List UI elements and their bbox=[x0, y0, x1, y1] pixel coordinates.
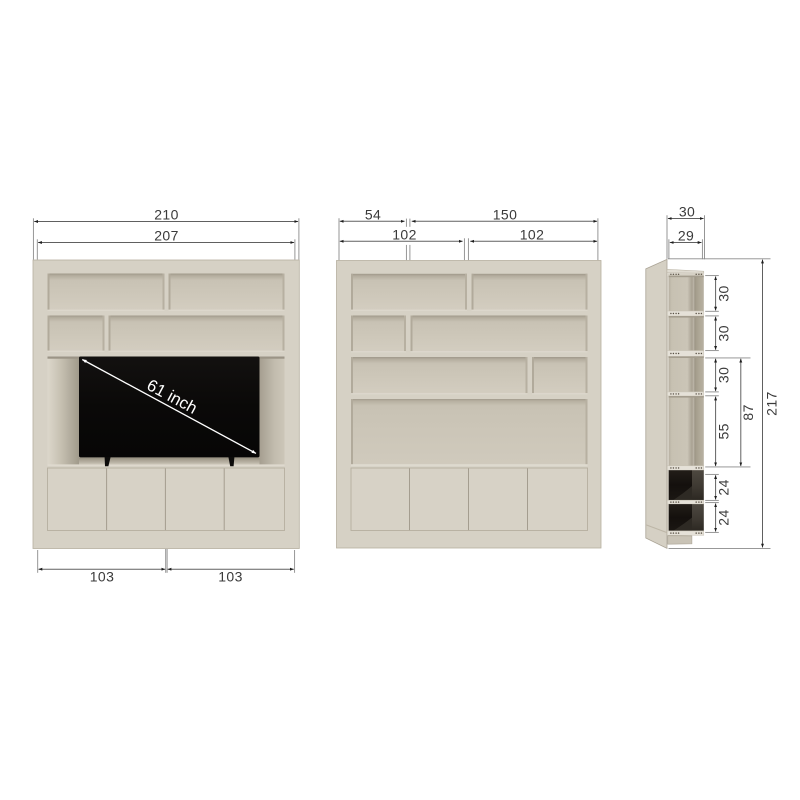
svg-text:30: 30 bbox=[715, 367, 731, 383]
svg-text:30: 30 bbox=[715, 285, 731, 301]
svg-text:210: 210 bbox=[154, 207, 179, 223]
svg-text:24: 24 bbox=[715, 509, 731, 525]
svg-text:207: 207 bbox=[154, 228, 179, 244]
svg-text:103: 103 bbox=[90, 568, 115, 584]
svg-text:30: 30 bbox=[679, 204, 695, 220]
svg-text:217: 217 bbox=[763, 391, 779, 416]
svg-text:103: 103 bbox=[218, 568, 243, 584]
svg-text:102: 102 bbox=[392, 226, 417, 242]
svg-text:24: 24 bbox=[715, 479, 731, 495]
svg-text:150: 150 bbox=[493, 206, 518, 222]
svg-text:54: 54 bbox=[365, 206, 381, 222]
svg-text:102: 102 bbox=[520, 226, 545, 242]
svg-text:29: 29 bbox=[678, 228, 694, 244]
svg-text:87: 87 bbox=[740, 404, 756, 420]
svg-text:30: 30 bbox=[715, 325, 731, 341]
svg-text:55: 55 bbox=[715, 423, 731, 439]
